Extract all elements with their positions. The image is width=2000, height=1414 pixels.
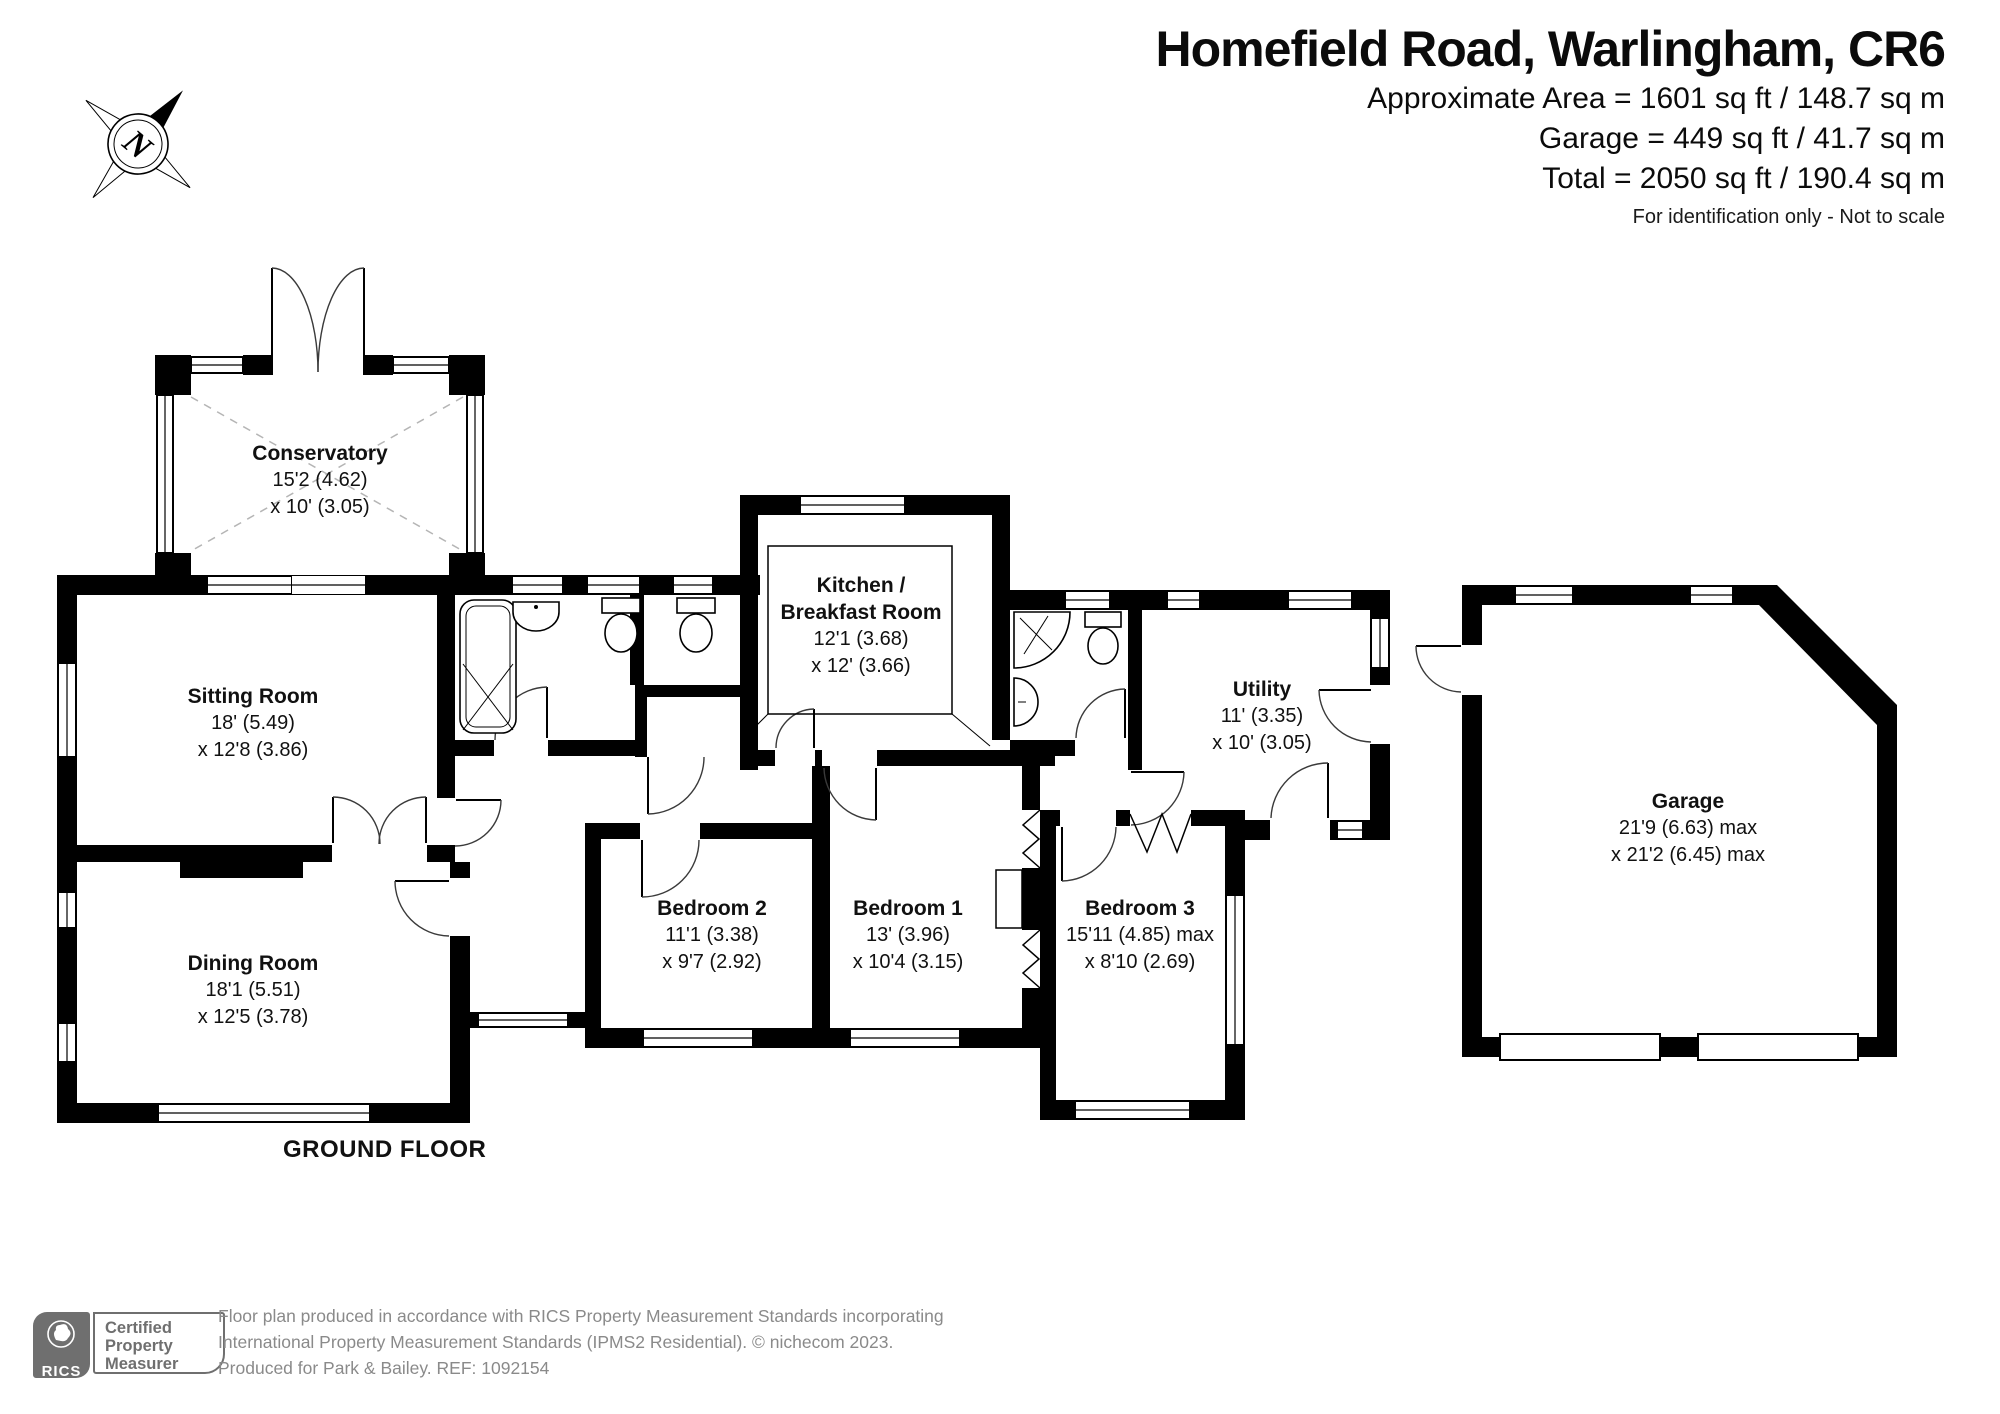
room-label-conservatory: Conservatory 15'2 (4.62) x 10' (3.05) — [252, 440, 387, 521]
floor-label: GROUND FLOOR — [283, 1136, 486, 1164]
toilet-icon — [1085, 612, 1121, 627]
bathtub-icon — [460, 600, 516, 733]
toilet-icon — [602, 598, 640, 613]
room-label-garage: Garage 21'9 (6.63) max x 21'2 (6.45) max — [1611, 788, 1765, 869]
rics-lion-icon — [33, 1312, 90, 1356]
total-area: Total = 2050 sq ft / 190.4 sq m — [1156, 160, 1945, 198]
room-label-bedroom-1: Bedroom 1 13' (3.96) x 10'4 (3.15) — [853, 895, 964, 976]
room-label-bedroom-3: Bedroom 3 15'11 (4.85) max x 8'10 (2.69) — [1066, 895, 1214, 976]
rics-badge: RICS Certified Property Measurer — [33, 1312, 243, 1378]
disclaimer-line-3: Produced for Park & Bailey. REF: 1092154 — [218, 1355, 944, 1381]
room-label-bedroom-2: Bedroom 2 11'1 (3.38) x 9'7 (2.92) — [657, 895, 767, 976]
disclaimer-line-1: Floor plan produced in accordance with R… — [218, 1303, 944, 1329]
room-label-sitting-room: Sitting Room 18' (5.49) x 12'8 (3.86) — [188, 683, 319, 764]
approximate-area: Approximate Area = 1601 sq ft / 148.7 sq… — [1156, 80, 1945, 118]
scale-note: For identification only - Not to scale — [1156, 206, 1945, 229]
disclaimer: Floor plan produced in accordance with R… — [218, 1303, 944, 1381]
garage-area: Garage = 449 sq ft / 41.7 sq m — [1156, 120, 1945, 158]
room-label-dining-room: Dining Room 18'1 (5.51) x 12'5 (3.78) — [188, 950, 319, 1031]
room-label-utility: Utility 11' (3.35) x 10' (3.05) — [1212, 676, 1311, 757]
compass-north-icon: N — [60, 70, 220, 225]
page-title: Homefield Road, Warlingham, CR6 — [1156, 20, 1945, 78]
certified-property-measurer-label: Certified Property Measurer — [93, 1312, 225, 1374]
room-label-kitchen: Kitchen / Breakfast Room 12'1 (3.68) x 1… — [780, 572, 941, 680]
toilet-icon — [677, 598, 715, 613]
rics-logo: RICS — [33, 1312, 90, 1378]
disclaimer-line-2: International Property Measurement Stand… — [218, 1329, 944, 1355]
header: Homefield Road, Warlingham, CR6 Approxim… — [1156, 20, 1945, 229]
